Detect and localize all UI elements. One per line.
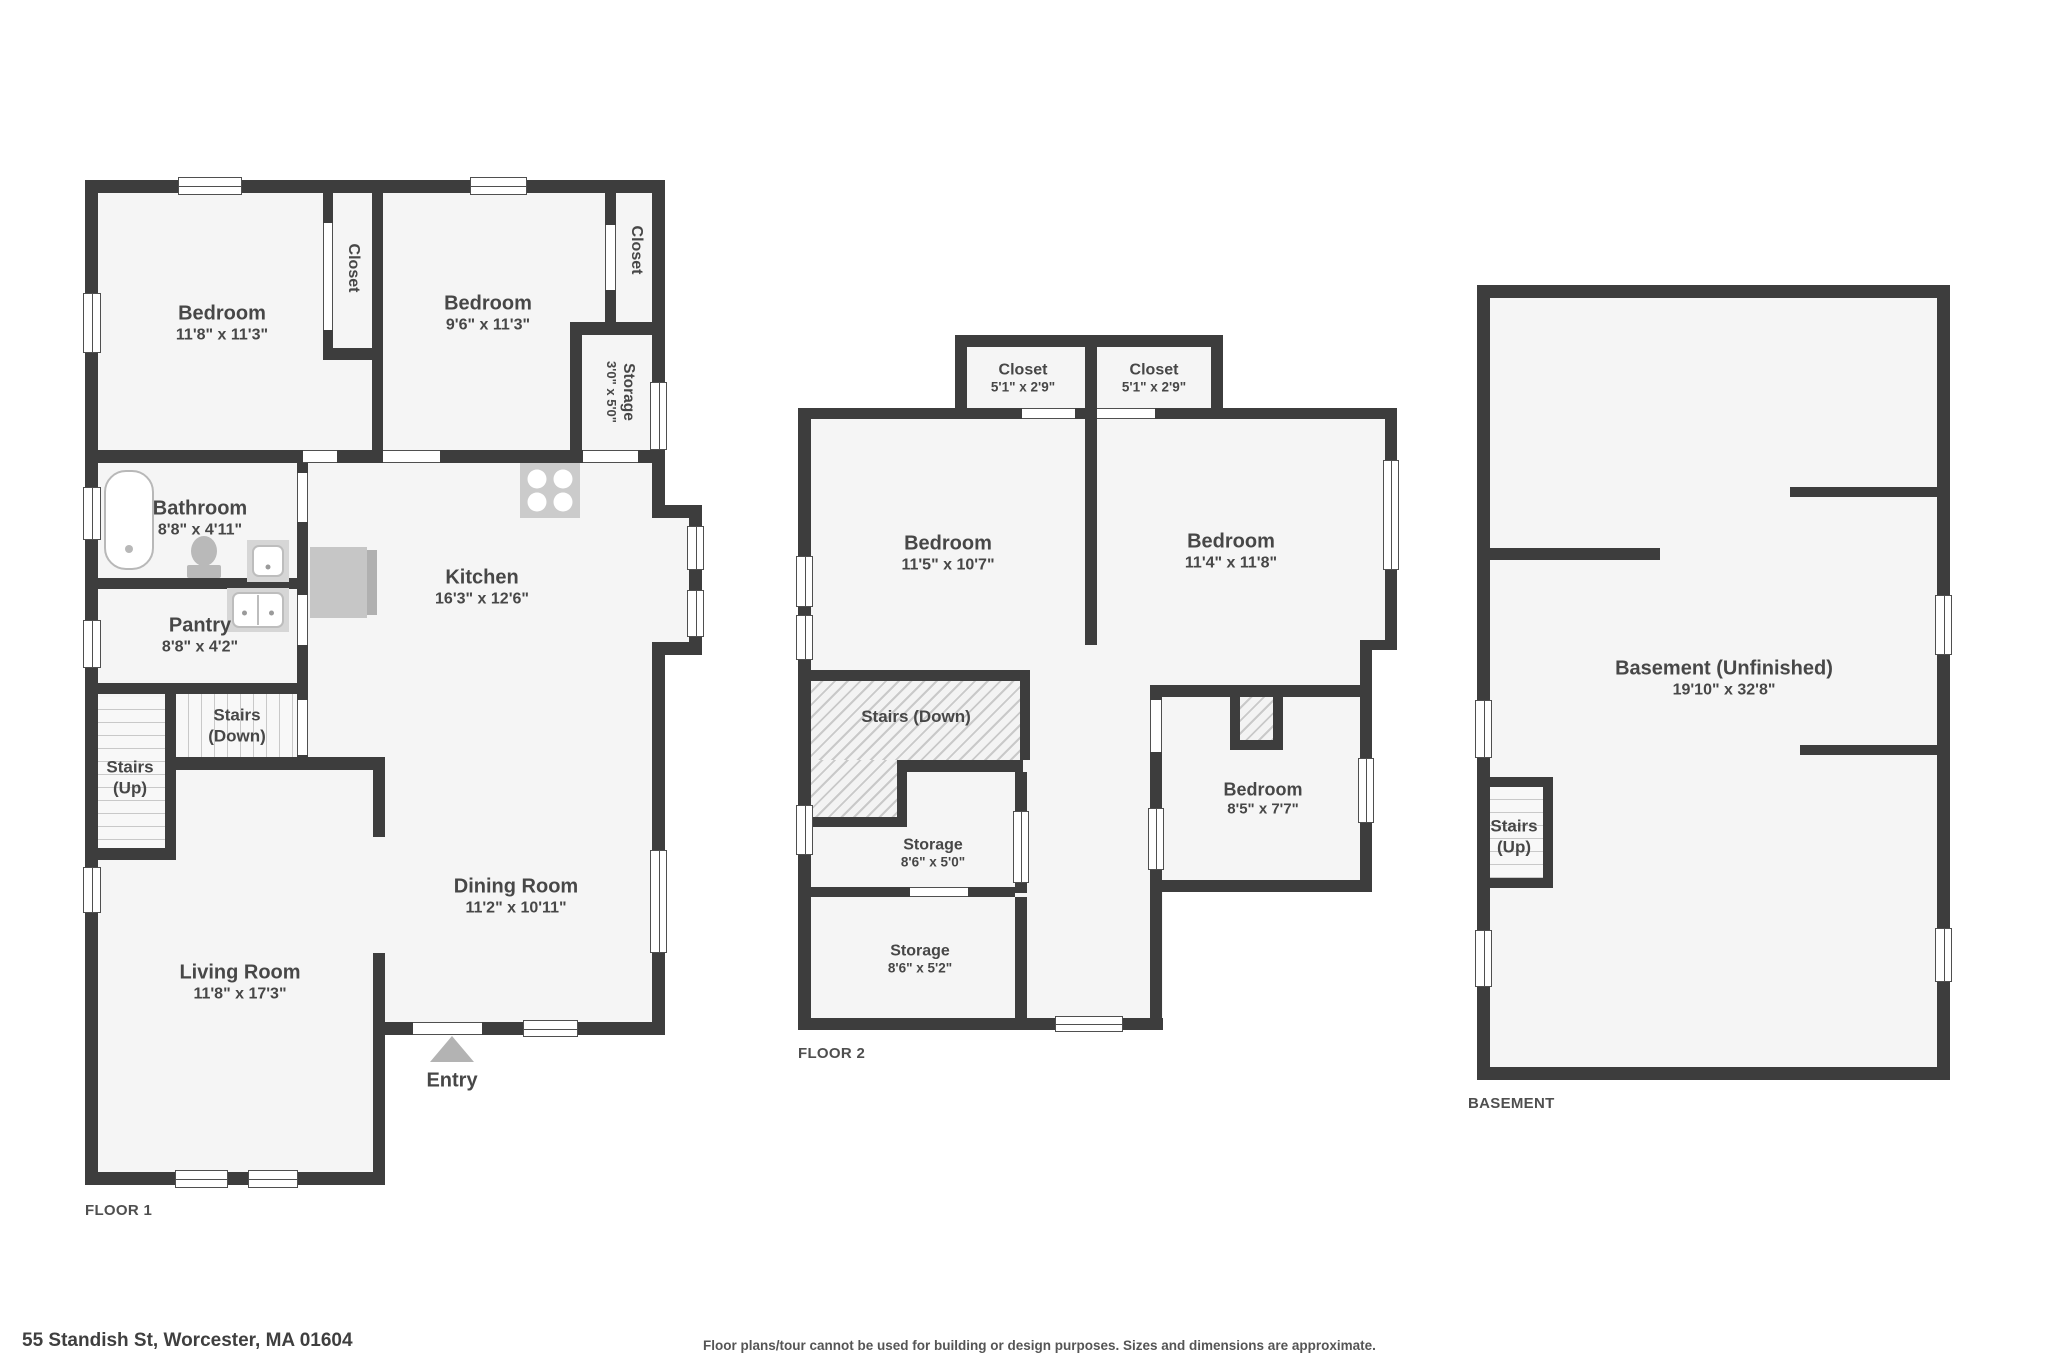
window-mullion	[524, 1029, 577, 1030]
door-opening	[297, 473, 308, 522]
room-label-line: 5'1" x 2'9"	[991, 380, 1055, 397]
floor1-label: FLOOR 1	[85, 1202, 152, 1219]
room-label-line: Bedroom	[1223, 779, 1302, 800]
floor2-label: FLOOR 2	[798, 1045, 865, 1062]
window-mullion	[1021, 812, 1022, 882]
room-label-line: 9'6" x 11'3"	[444, 316, 532, 336]
wall	[1230, 740, 1283, 750]
room-label-storage1_f2: Storage8'6" x 5'0"	[901, 836, 965, 871]
wall	[85, 180, 665, 193]
room-label-stairs_up_b: Stairs(Up)	[1490, 817, 1537, 858]
window	[796, 805, 813, 855]
wall	[85, 848, 176, 860]
fridge-icon	[310, 547, 367, 618]
window-mullion	[249, 1179, 297, 1180]
wall	[570, 335, 582, 450]
window-mullion	[92, 621, 93, 667]
wall	[85, 450, 665, 463]
room-label-bedroom_r: Bedroom11'4" x 11'8"	[1185, 531, 1277, 574]
window-mullion	[805, 806, 806, 854]
door-opening	[583, 450, 638, 463]
room-label-line: 8'5" x 7'7"	[1223, 800, 1302, 819]
room-label-line: Bedroom	[176, 303, 268, 326]
room-area	[85, 1035, 385, 1185]
door-opening	[605, 225, 616, 290]
room-label-line: Storage	[619, 361, 637, 423]
room-label-kitchen: Kitchen16'3" x 12'6"	[435, 567, 529, 610]
window	[175, 1170, 228, 1188]
room-label-closet2: Closet	[627, 226, 645, 275]
wall	[798, 817, 907, 827]
window	[1935, 595, 1952, 655]
door-opening	[323, 223, 333, 330]
door-opening	[297, 700, 308, 755]
window-mullion	[1391, 461, 1392, 569]
window	[83, 867, 101, 913]
room-label-line: Bedroom	[901, 533, 994, 556]
window-mullion	[696, 591, 697, 636]
room-label-bathroom: Bathroom8'8" x 4'11"	[153, 498, 247, 541]
room-label-line: 8'6" x 5'2"	[888, 961, 952, 978]
wall	[1150, 880, 1372, 892]
room-label-stairs_down_f1: Stairs(Down)	[208, 706, 266, 747]
window-mullion	[1156, 809, 1157, 869]
wall	[907, 760, 1023, 772]
toilet-icon	[185, 535, 223, 579]
room-label-line: 5'1" x 2'9"	[1122, 380, 1186, 397]
window-mullion	[805, 557, 806, 606]
door-opening	[413, 1022, 482, 1035]
room-label-line: Pantry	[162, 615, 238, 638]
wall	[323, 193, 333, 223]
window	[796, 556, 813, 607]
wall	[1360, 640, 1397, 650]
door-opening	[1150, 700, 1162, 752]
window	[248, 1170, 298, 1188]
window	[178, 177, 242, 195]
hatched-stairwell	[1240, 697, 1273, 740]
room-label-bedroom2: Bedroom9'6" x 11'3"	[444, 293, 532, 336]
room-label-line: Entry	[426, 1070, 477, 1093]
door-opening	[910, 887, 968, 897]
window-mullion	[471, 186, 526, 187]
wall	[1800, 745, 1937, 755]
floorplan-canvas: Bedroom11'8" x 11'3"ClosetBedroom9'6" x …	[0, 0, 2048, 1365]
door-opening	[297, 595, 308, 645]
wall	[798, 670, 1030, 681]
room-label-line: Closet	[627, 226, 645, 275]
window-mullion	[1944, 929, 1945, 981]
window-mullion	[659, 851, 660, 952]
window-mullion	[1944, 596, 1945, 654]
window-mullion	[805, 616, 806, 659]
room-label-line: Kitchen	[435, 567, 529, 590]
wall	[165, 757, 385, 770]
window	[83, 487, 101, 540]
window-mullion	[176, 1179, 227, 1180]
wall	[798, 887, 1015, 897]
sink-icon	[247, 540, 289, 582]
wall	[1085, 418, 1097, 645]
window	[1148, 808, 1164, 870]
room-label-dining: Dining Room11'2" x 10'11"	[454, 876, 578, 919]
room-label-line: 3'0" x 5'0"	[603, 361, 619, 423]
wall	[570, 322, 665, 335]
window	[796, 615, 813, 660]
wall	[85, 683, 308, 694]
window-mullion	[1484, 931, 1485, 986]
room-label-line: 8'6" x 5'0"	[901, 855, 965, 872]
window	[650, 850, 667, 953]
room-label-line: Storage	[888, 942, 952, 960]
room-label-storage_f1: Storage3'0" x 5'0"	[603, 361, 637, 423]
window	[1475, 700, 1492, 758]
window	[1383, 460, 1399, 570]
room-label-entry: Entry	[426, 1070, 477, 1093]
room-label-line: Storage	[901, 836, 965, 854]
wall	[798, 408, 811, 1030]
stove-icon	[520, 463, 580, 518]
wall	[1477, 1067, 1950, 1080]
door-opening	[383, 450, 440, 463]
room-label-bedroom_l: Bedroom11'5" x 10'7"	[901, 533, 994, 576]
room-label-basement_room: Basement (Unfinished)19'10" x 32'8"	[1615, 658, 1833, 701]
room-area	[798, 408, 1397, 650]
room-label-line: Stairs	[106, 758, 153, 778]
window	[83, 293, 101, 353]
wall	[85, 1172, 385, 1185]
room-label-living: Living Room11'8" x 17'3"	[179, 962, 300, 1005]
window-mullion	[1366, 759, 1367, 822]
wall	[372, 193, 383, 450]
wall	[1543, 777, 1553, 888]
window-mullion	[1056, 1024, 1122, 1025]
wall	[955, 335, 967, 418]
window-mullion	[696, 527, 697, 569]
window	[687, 526, 704, 570]
entry-arrow-icon	[430, 1036, 474, 1062]
room-label-line: Living Room	[179, 962, 300, 985]
hatched-stairwell	[811, 760, 897, 817]
room-label-bedroom1: Bedroom11'8" x 11'3"	[176, 303, 268, 346]
window-mullion	[179, 186, 241, 187]
room-label-line: 11'8" x 11'3"	[176, 326, 268, 346]
room-label-line: 8'8" x 4'11"	[153, 521, 247, 541]
wall	[1015, 897, 1027, 1018]
door-opening	[1097, 408, 1155, 419]
door-opening	[1022, 408, 1075, 419]
room-label-line: 11'5" x 10'7"	[901, 556, 994, 576]
room-label-line: Closet	[991, 361, 1055, 379]
room-label-line: Stairs (Down)	[861, 707, 971, 727]
bathtub-basin	[104, 470, 154, 570]
wall	[652, 642, 665, 1035]
window	[1055, 1016, 1123, 1032]
room-label-line: 16'3" x 12'6"	[435, 590, 529, 610]
wall	[1150, 685, 1372, 697]
window-mullion	[1484, 701, 1485, 757]
wall	[1211, 335, 1223, 418]
wall	[373, 953, 385, 1185]
room-label-stairs_up_f1: Stairs(Up)	[106, 758, 153, 799]
room-label-line: 11'8" x 17'3"	[179, 985, 300, 1005]
room-label-closet_b: Closet5'1" x 2'9"	[1122, 361, 1186, 396]
wall	[1085, 335, 1097, 418]
window	[1358, 758, 1374, 823]
wall	[165, 693, 176, 860]
bathtub-drain	[125, 545, 133, 553]
room-label-closet_a: Closet5'1" x 2'9"	[991, 361, 1055, 396]
room-label-line: 11'2" x 10'11"	[454, 899, 578, 919]
room-label-line: Stairs	[1490, 817, 1537, 837]
room-label-line: Closet	[344, 244, 362, 293]
window-mullion	[659, 383, 660, 449]
room-label-line: 19'10" x 32'8"	[1615, 681, 1833, 701]
basement-label: BASEMENT	[1468, 1095, 1555, 1112]
room-label-line: Bedroom	[444, 293, 532, 316]
room-label-line: Basement (Unfinished)	[1615, 658, 1833, 681]
room-label-line: Bedroom	[1185, 531, 1277, 554]
window-mullion	[92, 868, 93, 912]
room-label-line: Stairs	[208, 706, 266, 726]
room-label-bedroom_small: Bedroom8'5" x 7'7"	[1223, 779, 1302, 818]
window	[650, 382, 667, 450]
window-mullion	[92, 294, 93, 352]
room-label-storage2_f2: Storage8'6" x 5'2"	[888, 942, 952, 977]
wall	[323, 348, 372, 360]
room-label-line: 8'8" x 4'2"	[162, 638, 238, 658]
disclaimer-text: Floor plans/tour cannot be used for buil…	[703, 1338, 1376, 1353]
wall	[1790, 487, 1937, 497]
window	[1935, 928, 1952, 982]
room-label-line: (Up)	[1490, 836, 1537, 857]
window	[1475, 930, 1492, 987]
window-mullion	[92, 488, 93, 539]
property-address: 55 Standish St, Worcester, MA 01604	[22, 1330, 353, 1352]
room-label-closet1: Closet	[344, 244, 362, 293]
window	[1013, 811, 1029, 883]
room-label-line: Closet	[1122, 361, 1186, 379]
room-label-line: Bathroom	[153, 498, 247, 521]
window	[83, 620, 101, 668]
window	[523, 1020, 578, 1037]
window	[687, 590, 704, 637]
wall	[1477, 285, 1950, 298]
room-label-pantry: Pantry8'8" x 4'2"	[162, 615, 238, 658]
room-label-line: (Up)	[106, 777, 153, 798]
wall	[1483, 878, 1553, 888]
wall	[1490, 548, 1660, 560]
room-label-stairs_down_f2: Stairs (Down)	[861, 707, 971, 727]
room-label-line: 11'4" x 11'8"	[1185, 554, 1277, 574]
room-label-line: (Down)	[208, 725, 266, 746]
wall	[1020, 670, 1030, 760]
wall	[652, 180, 665, 515]
door-opening	[303, 450, 337, 463]
window	[470, 177, 527, 195]
room-label-line: Dining Room	[454, 876, 578, 899]
fridge-handle	[367, 550, 377, 615]
